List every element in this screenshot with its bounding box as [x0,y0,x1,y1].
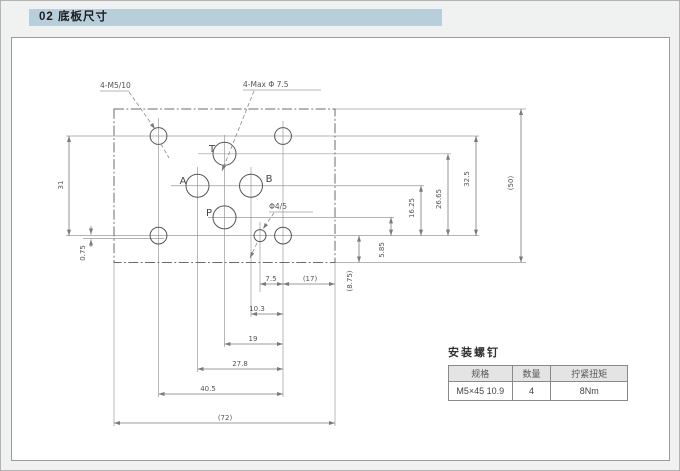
port-label-T: T [208,144,216,155]
port-label-B: B [266,174,273,185]
callout-mounting-holes: 4-M5/10 [100,81,131,90]
dim-plate-height: (50) [507,176,515,191]
callout-pin-hole: Φ4/5 [269,202,287,211]
port-label-P: P [206,208,212,219]
cell-qty: 4 [512,382,551,401]
datasheet-page: 02 底板尺寸 [0,0,680,471]
dim-holes-x: 40.5 [200,385,216,393]
table-header-row: 规格 数量 拧紧扭矩 [449,366,628,382]
header-torque: 拧紧扭矩 [551,366,628,382]
dim-left-height: 31 [57,181,65,190]
dim-left-offset: 0.75 [79,245,87,261]
cell-torque: 8Nm [551,382,628,401]
mounting-screw-table: 规格 数量 拧紧扭矩 M5×45 10.9 4 8Nm [448,365,628,401]
port-labels: T A B P [180,144,273,219]
header-qty: 数量 [512,366,551,382]
dim-t-height: 26.65 [435,189,443,209]
dim-pin-x: 7.5 [265,275,276,283]
mounting-screw-title: 安装螺钉 [448,344,628,360]
header-spec: 规格 [449,366,513,382]
dim-pt-x: 19 [249,335,258,343]
callout-leaders [100,90,321,258]
dim-b-x: 10.3 [249,305,265,313]
dim-p-height: 5.85 [378,242,386,258]
dim-top-holes-height: 32.5 [463,171,471,187]
dim-ab-height: 16.25 [408,198,416,218]
dim-bottom-edge: (8.75) [346,270,354,291]
dim-a-x: 27.8 [232,360,248,368]
port-label-A: A [180,176,187,187]
dim-plate-width: (72) [218,414,233,422]
table-row: M5×45 10.9 4 8Nm [449,382,628,401]
cell-spec: M5×45 10.9 [449,382,513,401]
dim-edge-x: (17) [303,275,318,283]
mounting-screw-block: 安装螺钉 规格 数量 拧紧扭矩 M5×45 10.9 4 8Nm [448,344,628,401]
callout-max-ports: 4-Max Φ 7.5 [243,80,289,89]
